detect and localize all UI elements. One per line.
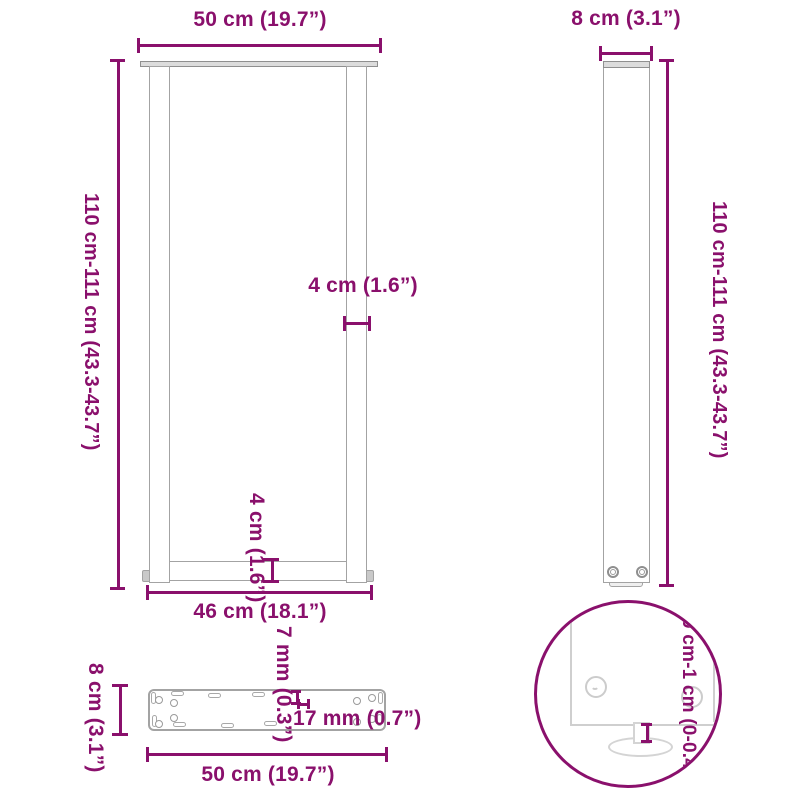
dim-tick (146, 585, 149, 600)
plate-slot-small-label: 7 mm (0.3”) (265, 626, 295, 728)
dim-tick (650, 46, 653, 61)
dim-tick (379, 38, 382, 53)
detail-circle: 0 cm-1 cm (0-0.4”) (534, 600, 722, 788)
front-height-label: 110 cm-111 cm (43.3-43.7”) (68, 192, 102, 452)
dim-tick (146, 747, 149, 762)
plate-width-label: 50 cm (19.7”) (148, 763, 388, 786)
detail-adjustment-label: 0 cm-1 cm (0-0.4”) (668, 618, 698, 771)
plate-slot (171, 691, 184, 696)
front-leg-width-dim-line (344, 322, 370, 325)
dim-tick (343, 316, 346, 331)
side-leg-foot (609, 582, 643, 587)
dimension-diagram: 50 cm (19.7”) 110 cm-111 cm (43.3-43.7”)… (0, 0, 800, 800)
dim-tick (659, 584, 674, 587)
screw-icon (607, 566, 619, 578)
front-height-dim-line (117, 60, 120, 590)
dim-tick (385, 747, 388, 762)
side-height-dim-line (666, 60, 669, 587)
dim-tick (110, 587, 125, 590)
dim-tick (110, 59, 125, 62)
dim-tick (291, 690, 301, 693)
plate-screw-hole (170, 714, 178, 722)
plate-slot-large-label: 17 mm (0.7”) (293, 707, 421, 730)
plate-corner-slot (378, 692, 383, 704)
plate-slot (173, 722, 186, 727)
dim-tick (659, 59, 674, 62)
plate-screw-hole (353, 697, 361, 705)
plate-slot (208, 693, 221, 698)
plate-depth-dim-line (119, 686, 122, 736)
side-depth-dim-line (600, 52, 653, 55)
plate-depth-label: 8 cm (3.1”) (77, 663, 107, 763)
front-top-plate (140, 61, 378, 67)
plate-width-dim-line (147, 753, 388, 756)
side-depth-label: 8 cm (3.1”) (566, 7, 686, 30)
detail-screw-hole (585, 676, 607, 698)
front-bottom-width-label: 46 cm (18.1”) (149, 600, 371, 623)
front-top-width-label: 50 cm (19.7”) (139, 8, 381, 31)
plate-slot (252, 692, 265, 697)
front-left-leg (149, 66, 170, 583)
dim-tick (641, 740, 652, 743)
dim-tick (112, 733, 128, 736)
front-leg-width-label: 4 cm (1.6”) (300, 274, 426, 297)
side-height-label: 110 cm-111 cm (43.3-43.7”) (696, 200, 730, 460)
screw-icon (636, 566, 648, 578)
dim-tick (112, 684, 128, 687)
plate-screw-hole (368, 694, 376, 702)
front-top-dim-line (138, 44, 382, 47)
side-leg-body (603, 61, 650, 583)
dim-tick (263, 580, 279, 583)
front-bottom-width-dim-line (148, 591, 372, 594)
dim-tick (137, 38, 140, 53)
side-leg-top-plate (603, 61, 650, 68)
plate-screw-hole (155, 696, 163, 704)
plate-screw-hole (155, 720, 163, 728)
front-bar-height-label: 4 cm (1.6”) (238, 493, 268, 593)
dim-tick (599, 46, 602, 61)
dim-tick (641, 723, 652, 726)
detail-leg-edge (570, 620, 572, 726)
detail-leg-edge (713, 622, 715, 722)
dim-tick (368, 316, 371, 331)
plate-screw-hole (170, 699, 178, 707)
dim-tick (263, 558, 279, 561)
plate-slot (221, 723, 234, 728)
dim-tick (370, 585, 373, 600)
